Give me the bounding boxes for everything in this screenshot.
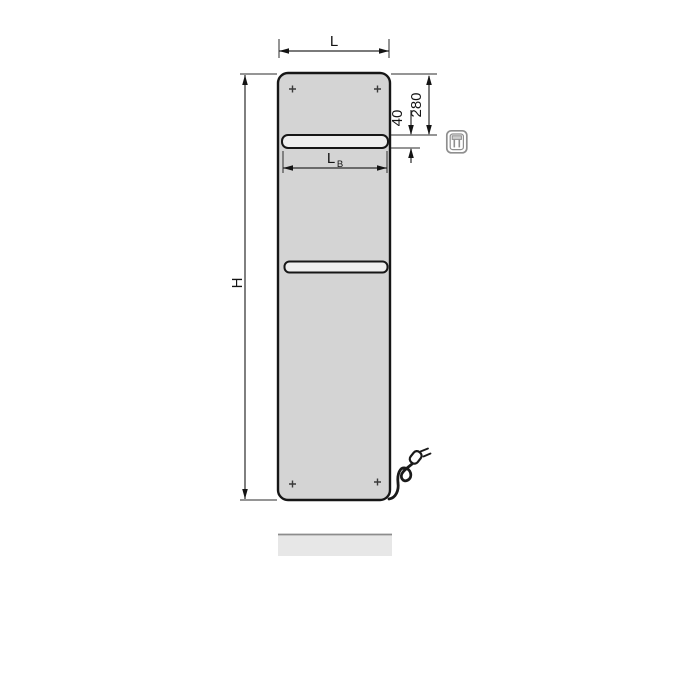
- towel-bar-middle: [285, 262, 388, 273]
- dim-40-arrow-up: [408, 148, 414, 158]
- dim-label-LB-main: L: [327, 150, 335, 167]
- dim-280-arrow-top: [426, 75, 432, 85]
- dim-H: H: [229, 74, 277, 500]
- dim-H-arrow-bottom: [242, 489, 248, 499]
- dim-40-arrow-down: [408, 125, 414, 135]
- dim-L-arrow-right: [379, 48, 389, 54]
- dim-L-arrow-left: [279, 48, 289, 54]
- electric-plug-icon-bridge: [452, 136, 461, 140]
- reflection-body: [278, 534, 392, 556]
- dim-H-arrow-top: [242, 75, 248, 85]
- dim-label-LB-subscript: B: [337, 159, 343, 170]
- power-cable: [389, 461, 415, 499]
- power-cord: [389, 449, 431, 500]
- dim-L: L: [279, 33, 389, 58]
- dim-label-H: H: [229, 278, 246, 289]
- dim-label-40: 40: [389, 110, 406, 127]
- floor-reflection: [278, 534, 392, 556]
- towel-bar-top: [282, 135, 388, 148]
- radiator-technical-drawing: L H 280 40: [0, 0, 700, 700]
- dim-280-arrow-bottom: [426, 125, 432, 135]
- dim-label-L: L: [330, 33, 338, 50]
- electric-plug-icon: [447, 131, 467, 153]
- diagram-canvas: L H 280 40: [0, 0, 700, 700]
